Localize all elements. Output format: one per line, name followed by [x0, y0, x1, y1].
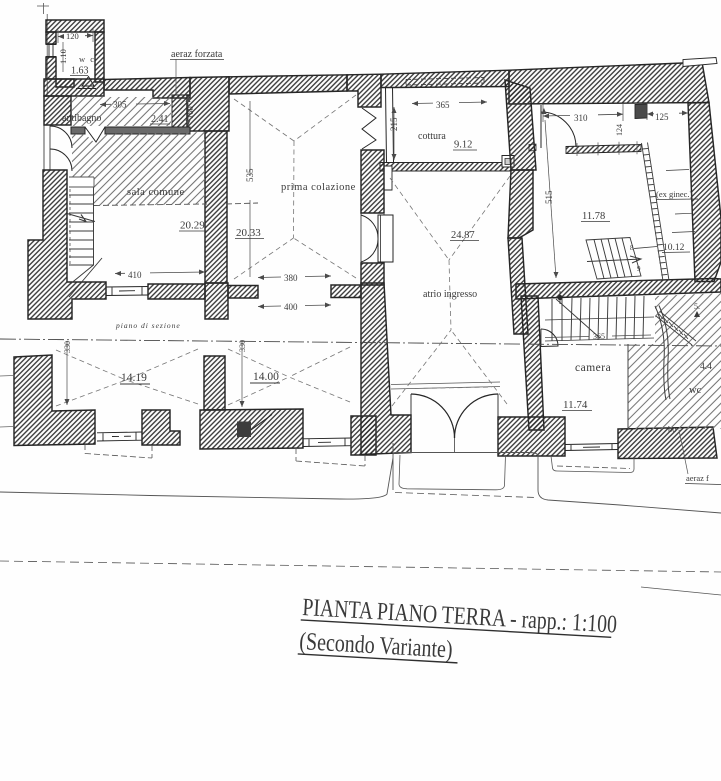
- svg-text:1.63: 1.63: [71, 66, 89, 77]
- svg-text:10.12: 10.12: [663, 243, 685, 253]
- svg-text:atrio ingresso: atrio ingresso: [423, 289, 477, 300]
- svg-text:8: 8: [630, 244, 634, 252]
- svg-text:215: 215: [389, 117, 399, 131]
- svg-text:365: 365: [436, 100, 450, 110]
- svg-text:aeraz forzata: aeraz forzata: [171, 49, 223, 60]
- svg-text:5.: 5.: [694, 302, 700, 311]
- svg-text:2.41: 2.41: [151, 114, 169, 125]
- svg-text:120: 120: [66, 31, 79, 41]
- svg-text:125: 125: [655, 112, 669, 122]
- svg-text:330: 330: [238, 340, 247, 352]
- svg-text:14.19: 14.19: [121, 372, 147, 384]
- svg-text:11.78: 11.78: [582, 211, 605, 222]
- svg-text:365: 365: [593, 332, 605, 341]
- svg-text:9: 9: [637, 265, 641, 273]
- svg-text:camera: camera: [575, 362, 611, 374]
- svg-text:535: 535: [245, 168, 255, 182]
- svg-text:sala comune: sala comune: [127, 187, 185, 198]
- svg-text:piano di sezione: piano di sezione: [115, 321, 181, 330]
- svg-text:310: 310: [574, 113, 588, 123]
- svg-text:bo: bo: [668, 424, 677, 434]
- svg-text:cottura: cottura: [418, 131, 446, 142]
- svg-text:antibagno: antibagno: [62, 113, 101, 124]
- svg-text:wc: wc: [689, 385, 702, 396]
- svg-text:400: 400: [284, 302, 298, 312]
- svg-text:(ex ginec.): (ex ginec.): [656, 189, 693, 199]
- svg-text:410: 410: [128, 270, 142, 280]
- svg-text:160: 160: [185, 106, 195, 119]
- svg-text:380: 380: [284, 273, 298, 283]
- svg-text:prima colazione: prima colazione: [281, 182, 356, 193]
- svg-text:w c: w c: [79, 54, 96, 64]
- svg-text:4.4: 4.4: [700, 362, 712, 372]
- svg-text:14.00: 14.00: [253, 371, 279, 383]
- svg-text:305: 305: [113, 100, 127, 110]
- svg-text:24.87: 24.87: [451, 230, 475, 241]
- svg-text:515: 515: [544, 190, 554, 204]
- svg-text:9.12: 9.12: [454, 140, 472, 151]
- svg-text:aeraz f: aeraz f: [686, 473, 709, 483]
- svg-text:20.33: 20.33: [236, 227, 261, 239]
- svg-text:124: 124: [615, 124, 624, 136]
- svg-text:11.74: 11.74: [563, 399, 588, 411]
- svg-text:330: 330: [63, 341, 72, 353]
- svg-text:20.29: 20.29: [180, 220, 205, 232]
- svg-text:1.10: 1.10: [58, 49, 68, 64]
